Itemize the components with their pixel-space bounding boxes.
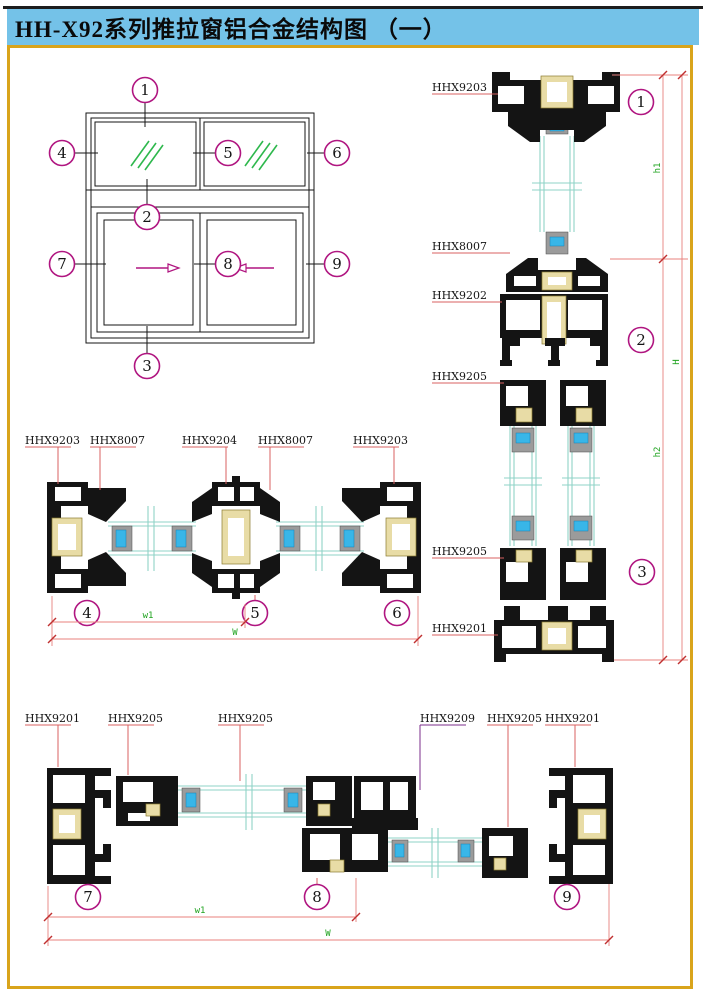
vsec-label-hhx9202: HHX9202	[432, 289, 487, 302]
msec-dim-w1: w1	[143, 611, 154, 621]
callout-4: 4	[50, 141, 75, 166]
profile-bsec-hhx9209	[352, 776, 418, 830]
svg-text:3: 3	[637, 563, 647, 581]
vsec-callout-3: 3	[630, 560, 655, 585]
callout-6: 6	[325, 141, 350, 166]
bsec-label-hhx9201-b: HHX9201	[545, 712, 600, 725]
msec-callout-6: 6	[385, 601, 410, 626]
callout-9: 9	[325, 252, 350, 277]
profile-vsec-hhx8007	[506, 258, 608, 292]
svg-text:6: 6	[332, 144, 342, 162]
profile-vsec-hhx9205-top	[500, 380, 606, 426]
msec-label-hhx9203-b: HHX9203	[353, 434, 408, 447]
callout-3: 3	[135, 354, 160, 379]
profile-bsec-lower-left	[302, 828, 388, 872]
bsec-label-hhx9205-b: HHX9205	[218, 712, 273, 725]
dim-label-h2: h2	[653, 447, 663, 458]
svg-text:9: 9	[332, 255, 342, 273]
vsec-label-hhx9205-b: HHX9205	[432, 545, 487, 558]
svg-text:1: 1	[140, 81, 150, 99]
profile-bsec-hhx9205-c	[482, 828, 528, 878]
glass-hatch-left	[131, 141, 163, 170]
vsec-callout-2: 2	[629, 328, 654, 353]
bottom-horizontal-section: HHX9201 HHX9205 HHX9205 HHX9209 HHX9205 …	[25, 712, 613, 946]
msec-callout-5: 5	[243, 601, 268, 626]
dim-label-h1: h1	[653, 163, 663, 174]
svg-text:3: 3	[142, 357, 152, 375]
bsec-label-hhx9205-a: HHX9205	[108, 712, 163, 725]
svg-text:8: 8	[312, 888, 322, 906]
callout-1: 1	[133, 78, 158, 103]
bsec-callout-7: 7	[76, 885, 101, 910]
profile-bsec-hhx9205-a	[116, 776, 178, 826]
bsec-label-hhx9201-a: HHX9201	[25, 712, 80, 725]
svg-text:4: 4	[57, 144, 67, 162]
profile-bsec-hhx9201-right	[549, 768, 613, 884]
msec-label-hhx9203-a: HHX9203	[25, 434, 80, 447]
callout-7: 7	[50, 252, 75, 277]
profile-msec-center	[192, 476, 280, 599]
svg-text:2: 2	[142, 208, 152, 226]
svg-text:7: 7	[57, 255, 67, 273]
bsec-label-hhx9205-c: HHX9205	[487, 712, 542, 725]
msec-dim-W: W	[232, 628, 238, 638]
profile-bsec-hhx9205-b	[306, 776, 352, 826]
svg-text:6: 6	[392, 604, 402, 622]
profile-vsec-hhx9201	[494, 606, 614, 662]
top-horizontal-section: HHX9203 HHX8007 HHX9204 HHX8007 HHX9203 …	[25, 434, 422, 646]
bsec-callout-9: 9	[555, 885, 580, 910]
vsec-label-hhx9203: HHX9203	[432, 81, 487, 94]
vsec-label-hhx9201: HHX9201	[432, 622, 487, 635]
drawing-canvas: 1 2 3 4 5 6 7 8 9	[0, 0, 706, 1000]
bsec-label-hhx9209: HHX9209	[420, 712, 475, 725]
bsec-callout-8: 8	[305, 885, 330, 910]
vsec-sliding-glass	[504, 426, 600, 546]
profile-vsec-hhx9202	[500, 294, 608, 366]
svg-text:8: 8	[223, 255, 233, 273]
vsec-label-hhx9205-a: HHX9205	[432, 370, 487, 383]
svg-text:7: 7	[83, 888, 93, 906]
msec-label-hhx8007-a: HHX8007	[90, 434, 145, 447]
svg-text:1: 1	[636, 93, 646, 111]
msec-label-hhx8007-b: HHX8007	[258, 434, 313, 447]
callout-2: 2	[135, 205, 160, 230]
slide-arrow-right	[136, 264, 179, 272]
svg-text:5: 5	[223, 144, 233, 162]
page: HH-X92系列推拉窗铝合金结构图 （一）	[0, 0, 706, 1000]
svg-text:9: 9	[562, 888, 572, 906]
profile-bsec-hhx9201-left	[47, 768, 111, 884]
vsec-callout-1: 1	[629, 90, 654, 115]
glass-hatch-right	[245, 141, 277, 170]
bsec-dim-w1: w1	[195, 906, 206, 916]
msec-label-hhx9204: HHX9204	[182, 434, 237, 447]
callout-5: 5	[216, 141, 241, 166]
svg-text:4: 4	[82, 604, 92, 622]
vertical-section: HHX9203 HHX8007 HHX9202 HHX9205 HHX9205 …	[432, 71, 688, 664]
bsec-dim-W: W	[325, 929, 331, 939]
window-schematic: 1 2 3 4 5 6 7 8 9	[50, 78, 350, 379]
svg-text:2: 2	[636, 331, 646, 349]
svg-text:5: 5	[250, 604, 260, 622]
vsec-label-hhx8007: HHX8007	[432, 240, 487, 253]
profile-vsec-hhx9205-bottom	[500, 548, 606, 600]
callout-8: 8	[216, 252, 241, 277]
dim-label-H: H	[672, 359, 682, 364]
